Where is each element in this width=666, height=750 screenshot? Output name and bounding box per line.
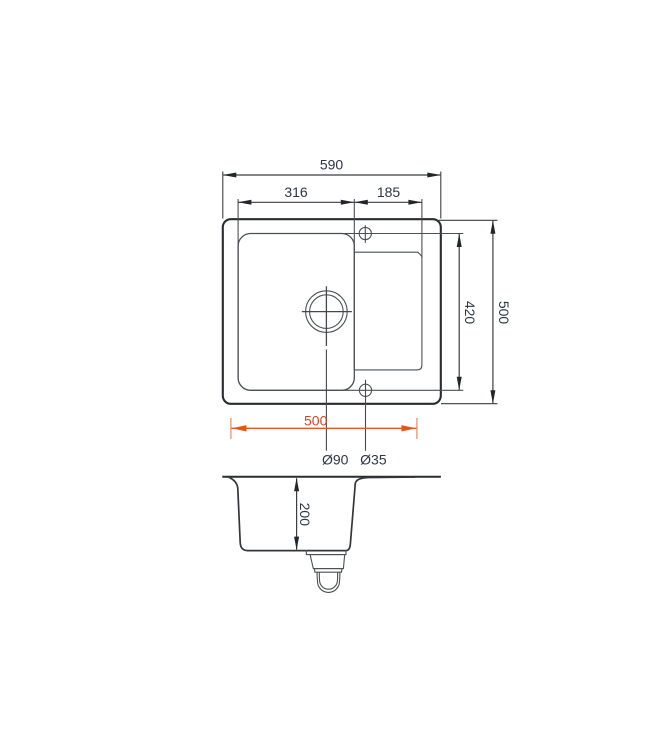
svg-text:316: 316	[284, 184, 308, 200]
svg-text:500: 500	[304, 413, 328, 429]
svg-text:Ø90: Ø90	[322, 452, 349, 468]
svg-text:590: 590	[320, 157, 344, 173]
svg-text:200: 200	[297, 503, 313, 527]
svg-text:185: 185	[377, 184, 401, 200]
svg-text:Ø35: Ø35	[360, 452, 387, 468]
svg-text:500: 500	[496, 301, 512, 325]
svg-text:420: 420	[462, 301, 478, 325]
